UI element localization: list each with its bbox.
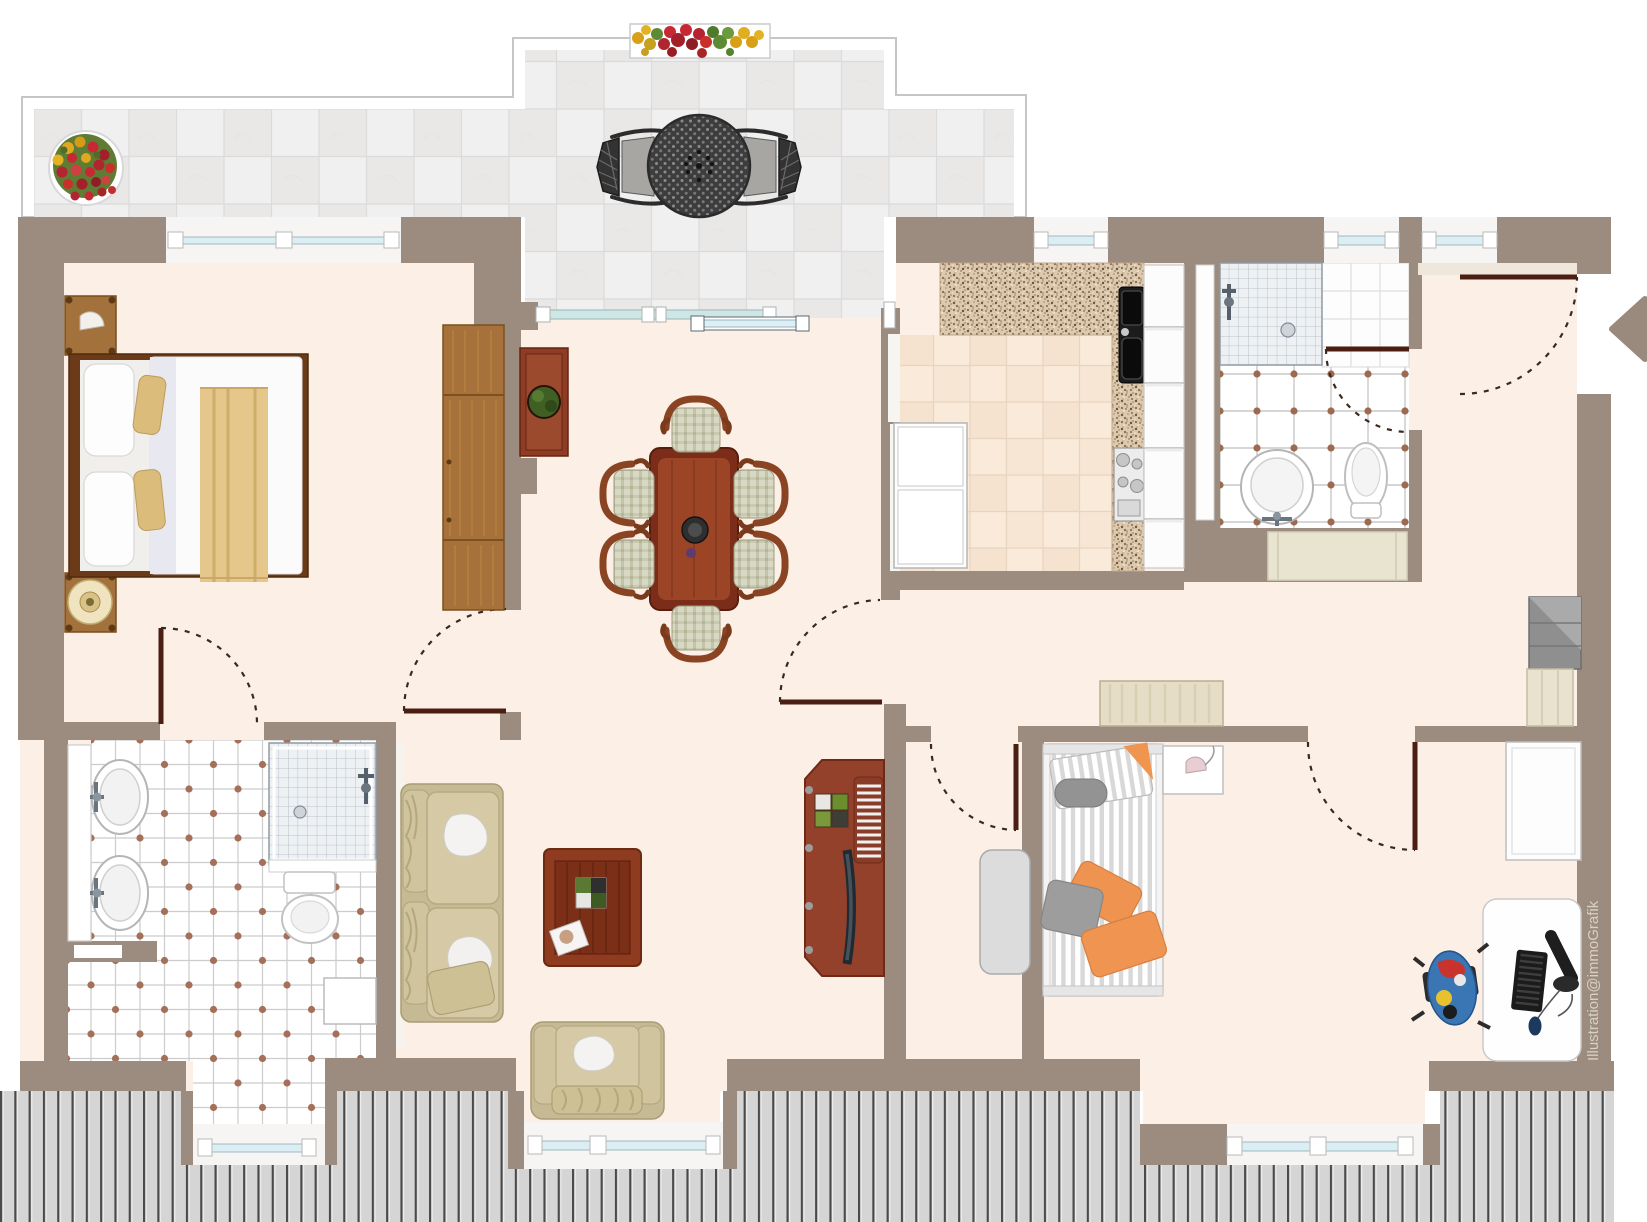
svg-text:Illustration@immoGrafik: Illustration@immoGrafik xyxy=(1585,900,1602,1061)
